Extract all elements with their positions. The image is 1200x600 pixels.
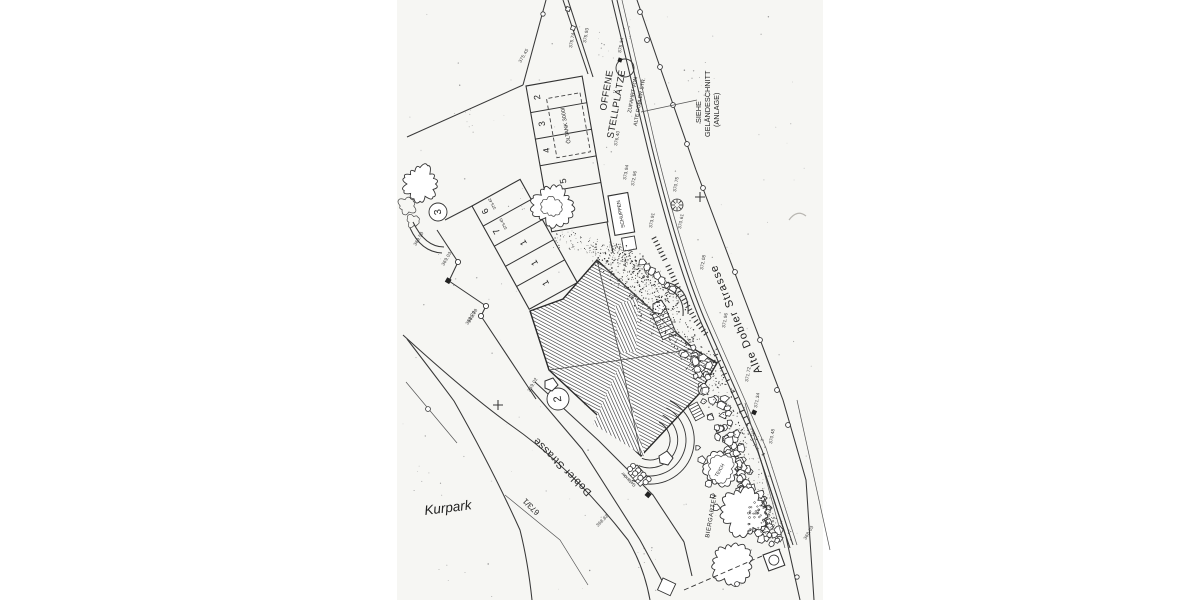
svg-text:GELÄNDESCHNITT: GELÄNDESCHNITT [703,70,712,137]
svg-text:SIEHE: SIEHE [694,101,703,123]
svg-text:(ANLAGE): (ANLAGE) [712,93,721,127]
